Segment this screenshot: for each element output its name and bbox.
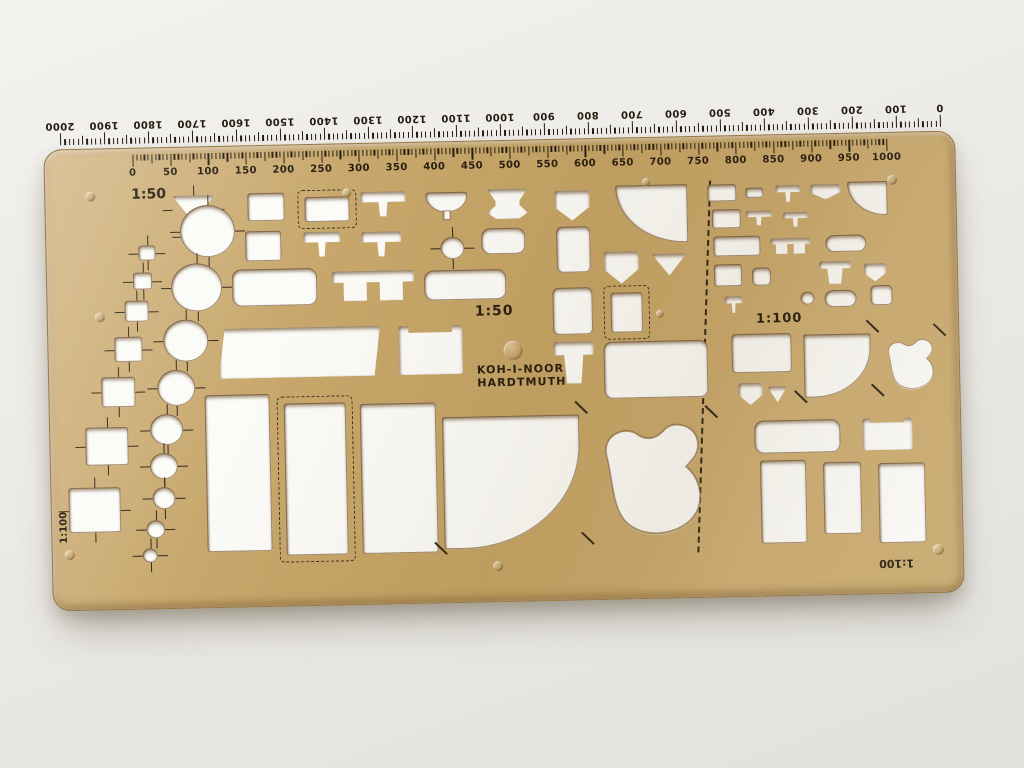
ruler-tick (366, 150, 367, 156)
registration-tick (185, 310, 187, 320)
ruler-tick (619, 128, 620, 134)
cutout-layer (44, 132, 954, 151)
ruler-tick (611, 145, 612, 151)
ruler-tick (324, 128, 326, 140)
registration-tick (119, 407, 121, 417)
ruler-tick (434, 148, 436, 160)
crib-dashed-cutout (304, 196, 350, 222)
registration-tick (161, 288, 171, 290)
ruler-tick (845, 140, 846, 146)
scale-label-top-left: 1:50 (131, 186, 166, 203)
ruler-tick (653, 144, 654, 150)
registration-tick (430, 248, 440, 250)
ruler-tick (215, 153, 216, 159)
ruler-tick (453, 148, 454, 157)
ruler-number: 700 (620, 108, 642, 119)
registration-tick (165, 529, 175, 531)
ruler-tick (362, 150, 363, 156)
ruler-tick (702, 126, 703, 132)
ruler-tick (272, 152, 273, 158)
ruler-tick (922, 121, 923, 127)
ruler-tick (632, 121, 634, 133)
registration-tick (123, 281, 133, 283)
ruler-tick (680, 126, 681, 132)
registration-tick (129, 362, 131, 372)
ruler-tick (386, 132, 387, 138)
ruler-tick (518, 130, 519, 136)
bed-100-1-cutout (760, 460, 808, 544)
top-ruler: 0501001502002503003504004505005506006507… (44, 132, 954, 151)
ruler-tick (157, 137, 158, 143)
scale-label-right: 1:100 (756, 311, 803, 327)
circle-6-cutout (150, 453, 179, 480)
ruler-tick (570, 129, 571, 135)
ruler-tick (218, 136, 219, 142)
table-100-2-cutout (745, 188, 763, 198)
ruler-tick (588, 122, 590, 134)
ruler-tick (663, 127, 664, 133)
ruler-tick (739, 142, 740, 148)
ruler-tick (201, 136, 202, 142)
ruler-tick (161, 137, 162, 143)
ruler-tick (430, 148, 431, 154)
ruler-tick (675, 143, 676, 149)
ruler-number: 200 (840, 103, 862, 114)
ruler-tick (452, 131, 453, 137)
ruler-tick (918, 118, 919, 127)
ruler-tick (509, 130, 510, 136)
ruler-number: 950 (838, 152, 860, 163)
ruler-tick (656, 144, 657, 150)
ruler-tick (737, 125, 738, 131)
ruler-number: 1000 (485, 111, 515, 123)
stool-100-cutout (752, 267, 771, 285)
ruler-number: 1700 (177, 117, 207, 129)
ruler-tick (377, 150, 378, 159)
door-quarter-cutout (615, 184, 688, 243)
ruler-tick (232, 136, 233, 142)
ruler-tick (325, 151, 326, 157)
ruler-tick (310, 151, 311, 157)
ruler-tick (271, 135, 272, 141)
ruler-tick (628, 127, 629, 133)
ruler-tick (709, 143, 710, 149)
ruler-tick (317, 151, 318, 157)
ruler-tick (658, 127, 659, 133)
armchair-cutout (398, 325, 463, 375)
ruler-tick (258, 132, 259, 141)
ruler-tick (320, 134, 321, 140)
registration-tick (163, 209, 173, 211)
registration-tick (118, 367, 120, 377)
ruler-tick (364, 133, 365, 139)
registration-tick (133, 556, 143, 558)
ruler-tick (513, 130, 514, 136)
ruler-tick (95, 138, 96, 144)
ruler-tick (668, 143, 669, 149)
registration-tick (94, 478, 96, 488)
ruler-tick (826, 140, 827, 146)
ruler-tick (773, 124, 774, 130)
ruler-number: 2000 (45, 120, 75, 132)
ruler-number: 1000 (872, 152, 902, 164)
ruler-tick (249, 152, 250, 158)
ruler-tick (293, 134, 294, 140)
ruler-tick (614, 128, 615, 134)
ruler-tick (151, 154, 152, 163)
ruler-tick (399, 132, 400, 138)
ruler-tick (634, 144, 635, 150)
ruler-tick (815, 140, 816, 146)
ruler-tick (581, 145, 582, 151)
washbasin-100-4-cutout (724, 296, 742, 313)
ruler-tick (494, 147, 495, 153)
ruler-tick (264, 152, 265, 161)
ruler-tick (457, 148, 458, 154)
ruler-tick (500, 124, 502, 136)
ruler-tick (811, 140, 813, 152)
ruler-tick (641, 144, 642, 153)
bed-100-3-cutout (878, 462, 927, 543)
registration-tick (128, 327, 130, 337)
ruler-tick (874, 119, 875, 128)
ruler-tick (166, 137, 167, 143)
ruler-tick (178, 154, 179, 160)
ruler-number: 500 (499, 160, 521, 171)
ruler-tick (626, 144, 627, 150)
ruler-tick (849, 140, 851, 152)
ruler-tick (227, 153, 228, 162)
ruler-tick (864, 139, 865, 145)
ruler-tick (502, 147, 503, 153)
ruler-tick (426, 149, 427, 155)
ruler-tick (698, 143, 700, 155)
ruler-tick (543, 146, 544, 152)
ruler-tick (91, 139, 92, 145)
bed-large-cutout (204, 394, 272, 552)
ruler-tick (475, 148, 476, 154)
ruler-tick (100, 138, 101, 144)
ruler-tick (238, 152, 239, 158)
ruler-tick (623, 127, 624, 133)
ruler-tick (604, 145, 605, 154)
table-rect-cutout (247, 193, 285, 222)
ruler-number: 800 (725, 155, 747, 166)
ruler-tick (340, 150, 341, 159)
ruler-tick (732, 142, 733, 148)
ruler-tick (298, 134, 299, 140)
ruler-tick (355, 150, 356, 156)
registration-tick (140, 466, 150, 468)
ruler-tick (245, 135, 246, 141)
registration-tick (152, 281, 162, 283)
ruler-tick (758, 142, 759, 148)
ruler-tick (144, 154, 145, 160)
ruler-tick (667, 127, 668, 133)
ruler-tick (672, 126, 673, 132)
circle-7-cutout (152, 487, 175, 509)
door-quarter-100-cutout (847, 181, 888, 216)
ruler-tick (664, 144, 665, 150)
rivet-boss (503, 341, 522, 360)
ruler-tick (784, 141, 785, 147)
ruler-tick (284, 135, 285, 141)
registration-tick (140, 430, 150, 432)
ruler-tick (135, 138, 136, 144)
ruler-number: 1600 (221, 116, 251, 128)
pentagon-1-cutout (554, 190, 590, 221)
bed-100-2-cutout (823, 462, 862, 535)
square-6-cutout (85, 427, 129, 466)
ruler-number: 850 (762, 154, 784, 165)
registration-tick (196, 253, 198, 263)
registration-tick (193, 185, 195, 195)
ruler-tick (403, 132, 404, 138)
registration-tick (149, 311, 159, 313)
ruler-tick (315, 134, 316, 140)
ruler-tick (575, 128, 576, 134)
ruler-tick (268, 152, 269, 158)
ruler-tick (342, 133, 343, 139)
ruler-tick (204, 153, 205, 159)
ruler-tick (117, 138, 118, 144)
ruler-tick (465, 131, 466, 137)
square-4-cutout (114, 337, 143, 363)
ruler-tick (328, 151, 329, 157)
circle-8-cutout (146, 520, 165, 538)
ruler-tick (460, 131, 461, 137)
grand-piano-100-cutout (880, 337, 938, 391)
ruler-tick (683, 143, 684, 149)
ruler-number: 0 (936, 102, 944, 113)
registration-tick (235, 230, 245, 232)
ruler-tick (619, 145, 620, 151)
registration-tick (177, 406, 179, 416)
ruler-tick (742, 122, 743, 131)
ruler-tick (464, 148, 465, 154)
ruler-tick (707, 126, 708, 132)
washbasin-100-1-cutout (775, 185, 800, 203)
ruler-tick (570, 146, 571, 152)
table-100-5-cutout (714, 264, 742, 287)
ruler-tick (185, 154, 186, 160)
registration-tick (164, 477, 166, 487)
door-swing-large-cutout (442, 414, 582, 549)
ruler-tick (113, 138, 114, 144)
ruler-tick (717, 142, 718, 151)
ruler-tick (724, 125, 725, 131)
ruler-tick (249, 135, 250, 141)
ruler-tick (408, 132, 409, 138)
ruler-tick (381, 132, 382, 138)
pentagon-100-2-cutout (864, 263, 886, 281)
registration-tick (163, 443, 165, 453)
registration-tick (142, 349, 152, 351)
ruler-tick (267, 135, 268, 141)
ruler-tick (234, 153, 235, 159)
ruler-tick (210, 136, 211, 142)
cabinet-2-cutout (552, 287, 593, 335)
washbasin-3-cutout (361, 231, 402, 257)
ruler-tick (551, 146, 552, 152)
ruler-tick (472, 148, 474, 160)
ruler-tick (764, 118, 766, 130)
ruler-tick (711, 126, 712, 132)
urinal-cutout (487, 188, 528, 219)
ruler-tick (192, 130, 194, 142)
ruler-tick (504, 130, 505, 136)
ruler-tick (600, 145, 601, 151)
table-100-1-cutout (707, 184, 736, 202)
ruler-tick (108, 138, 109, 144)
ruler-tick (875, 139, 876, 145)
square-7-cutout (68, 487, 121, 533)
ruler-number: 250 (310, 164, 332, 175)
registration-tick (142, 263, 144, 273)
ruler-tick (566, 146, 567, 155)
registration-tick (150, 562, 152, 572)
ruler-tick (445, 148, 446, 154)
ruler-tick (615, 145, 616, 151)
registration-tick (121, 509, 131, 511)
ruler-tick (865, 122, 866, 128)
ruler-tick (729, 125, 730, 131)
ruler-tick (843, 123, 844, 129)
ruler-tick (792, 141, 793, 150)
triangle-100-cutout (767, 386, 787, 402)
ruler-number: 1500 (265, 115, 295, 127)
registration-tick (147, 235, 149, 245)
ruler-tick (766, 141, 767, 147)
ruler-tick (540, 129, 541, 135)
rivet-layer (44, 132, 954, 151)
ruler-number: 900 (800, 153, 822, 164)
registration-tick (155, 253, 165, 255)
ruler-tick (443, 131, 444, 137)
ruler-tick (82, 136, 83, 145)
square-1-cutout (138, 245, 155, 260)
ruler-tick (479, 147, 480, 153)
ruler-tick (280, 129, 282, 141)
rivet-boss (493, 561, 503, 571)
ruler-tick (313, 151, 314, 157)
ruler-tick (223, 153, 224, 159)
bed-dashed-cutout (284, 402, 349, 555)
ruler-tick (528, 146, 529, 155)
ruler-tick (882, 139, 883, 145)
ruler-tick (733, 125, 734, 131)
ruler-number: 50 (163, 167, 178, 178)
ruler-tick (547, 146, 549, 158)
ruler-tick (841, 140, 842, 146)
ruler-tick (526, 129, 527, 135)
template-plate: 0501001502002503003504004505005506006507… (43, 131, 964, 612)
ruler-tick (253, 152, 254, 158)
ruler-tick (702, 143, 703, 149)
ruler-tick (825, 123, 826, 129)
registration-tick (147, 260, 149, 270)
registration-tick (176, 498, 186, 500)
ruler-tick (208, 153, 210, 165)
ruler-tick (152, 137, 153, 143)
ruler-tick (597, 128, 598, 134)
registration-tick (208, 340, 218, 342)
ruler-tick (768, 124, 769, 130)
ruler-tick (509, 147, 511, 159)
ruler-tick (359, 150, 361, 162)
registration-tick (115, 311, 125, 313)
ruler-tick (139, 138, 140, 144)
ruler-tick (562, 146, 563, 152)
ruler-tick (544, 123, 546, 135)
ruler-tick (332, 151, 333, 157)
ruler-tick (449, 148, 450, 154)
ruler-tick (372, 133, 373, 139)
registration-tick (136, 291, 138, 301)
ruler-tick (291, 151, 292, 157)
ruler-tick (193, 153, 194, 159)
ruler-tick (896, 116, 898, 128)
bathtub-2-cutout (424, 269, 507, 301)
ruler-tick (601, 128, 602, 134)
table-100-3-cutout (712, 209, 741, 229)
ruler-tick (573, 145, 574, 151)
circle-4-cutout (157, 369, 196, 406)
bed-wide-cutout (360, 402, 439, 554)
registration-tick (153, 341, 163, 343)
ruler-tick (385, 149, 386, 155)
door-swing-100-cutout (803, 333, 871, 397)
ruler-number: 500 (708, 106, 730, 117)
ruler-tick (189, 154, 190, 163)
ruler-tick (867, 139, 868, 148)
ruler-tick (396, 149, 398, 161)
ruler-tick (808, 118, 810, 130)
ruler-tick (245, 152, 247, 164)
ruler-number: 300 (348, 163, 370, 174)
ruler-tick (276, 152, 277, 158)
ruler-tick (861, 122, 862, 128)
registration-diagonal-tick (866, 320, 879, 333)
ruler-tick (392, 149, 393, 155)
ruler-tick (86, 139, 87, 145)
square-5-cutout (101, 377, 136, 408)
ruler-tick (302, 151, 303, 160)
bathtub-1-cutout (232, 268, 318, 307)
bathtub-100-1-cutout (825, 234, 866, 252)
ruler-tick (676, 120, 678, 132)
ruler-tick (524, 146, 525, 152)
ruler-tick (584, 128, 585, 134)
registration-diagonal-tick (575, 401, 588, 414)
ruler-tick (147, 154, 148, 160)
ruler-tick (423, 149, 424, 155)
circle-1-cutout (179, 205, 235, 258)
ruler-tick (347, 150, 348, 156)
ruler-tick (852, 140, 853, 146)
ruler-tick (122, 138, 123, 144)
ruler-tick (174, 154, 175, 160)
registration-tick (128, 253, 138, 255)
bathtub-100-2-cutout (824, 290, 856, 308)
scale-label-bottom-right: 1:100 (879, 556, 914, 570)
ruler-tick (430, 131, 431, 137)
circle-2-cutout (171, 263, 223, 312)
ruler-tick (822, 140, 823, 146)
rivet-boss (887, 175, 897, 185)
ruler-tick (468, 148, 469, 154)
ruler-tick (155, 154, 156, 160)
